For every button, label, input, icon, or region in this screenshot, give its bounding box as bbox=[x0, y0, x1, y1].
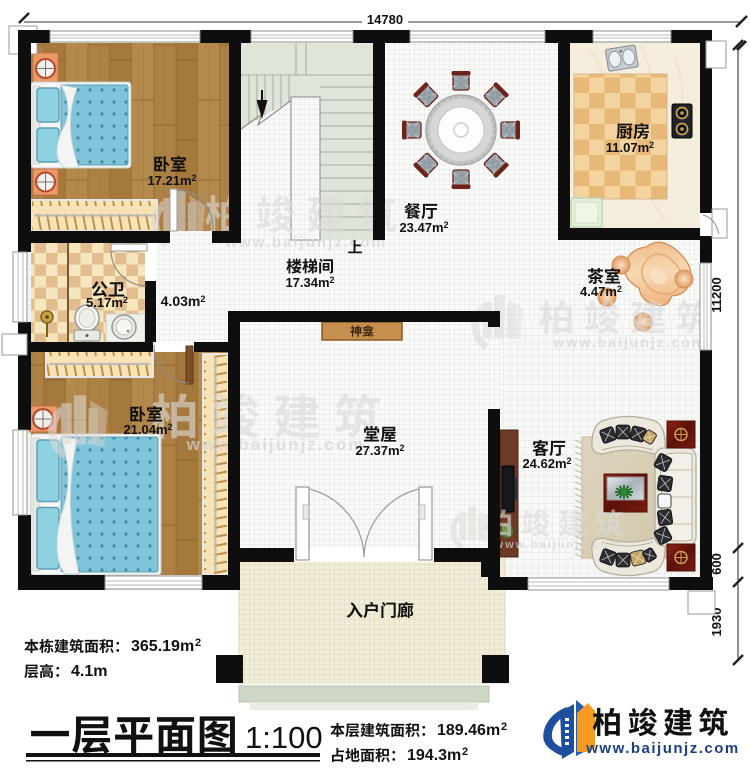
svg-text:17.34m2: 17.34m2 bbox=[285, 275, 334, 290]
svg-text:www.baijunjz.com: www.baijunjz.com bbox=[553, 334, 707, 350]
svg-text:194.3m: 194.3m bbox=[407, 747, 461, 764]
svg-text:600: 600 bbox=[709, 553, 724, 575]
svg-text:23.47m2: 23.47m2 bbox=[399, 220, 448, 235]
svg-text:189.46m: 189.46m bbox=[437, 722, 500, 739]
svg-text:www.baijunjz.com: www.baijunjz.com bbox=[186, 435, 366, 454]
svg-text:www.baijunjz.com: www.baijunjz.com bbox=[494, 539, 622, 551]
svg-text:4.03m2: 4.03m2 bbox=[161, 293, 206, 309]
svg-text:www.baijunjz.com: www.baijunjz.com bbox=[585, 740, 739, 757]
svg-text:24.62m2: 24.62m2 bbox=[522, 456, 571, 471]
svg-text:21.04m2: 21.04m2 bbox=[123, 422, 172, 437]
svg-text:2: 2 bbox=[462, 746, 468, 758]
svg-text:4.1m: 4.1m bbox=[71, 663, 107, 680]
svg-text:5.17m2: 5.17m2 bbox=[86, 295, 128, 310]
svg-text:11200: 11200 bbox=[709, 277, 724, 312]
svg-text:17.21m2: 17.21m2 bbox=[147, 173, 196, 188]
svg-text:2: 2 bbox=[501, 721, 507, 733]
svg-text:27.37m2: 27.37m2 bbox=[355, 443, 404, 458]
svg-text:www.baijunjz.com: www.baijunjz.com bbox=[224, 234, 386, 251]
svg-text:2: 2 bbox=[195, 637, 201, 649]
svg-text:14780: 14780 bbox=[367, 12, 403, 27]
svg-text:1:100: 1:100 bbox=[245, 720, 323, 755]
svg-text:365.19m: 365.19m bbox=[131, 638, 194, 655]
svg-text:11.07m2: 11.07m2 bbox=[606, 140, 654, 155]
svg-text:4.47m2: 4.47m2 bbox=[580, 284, 622, 299]
